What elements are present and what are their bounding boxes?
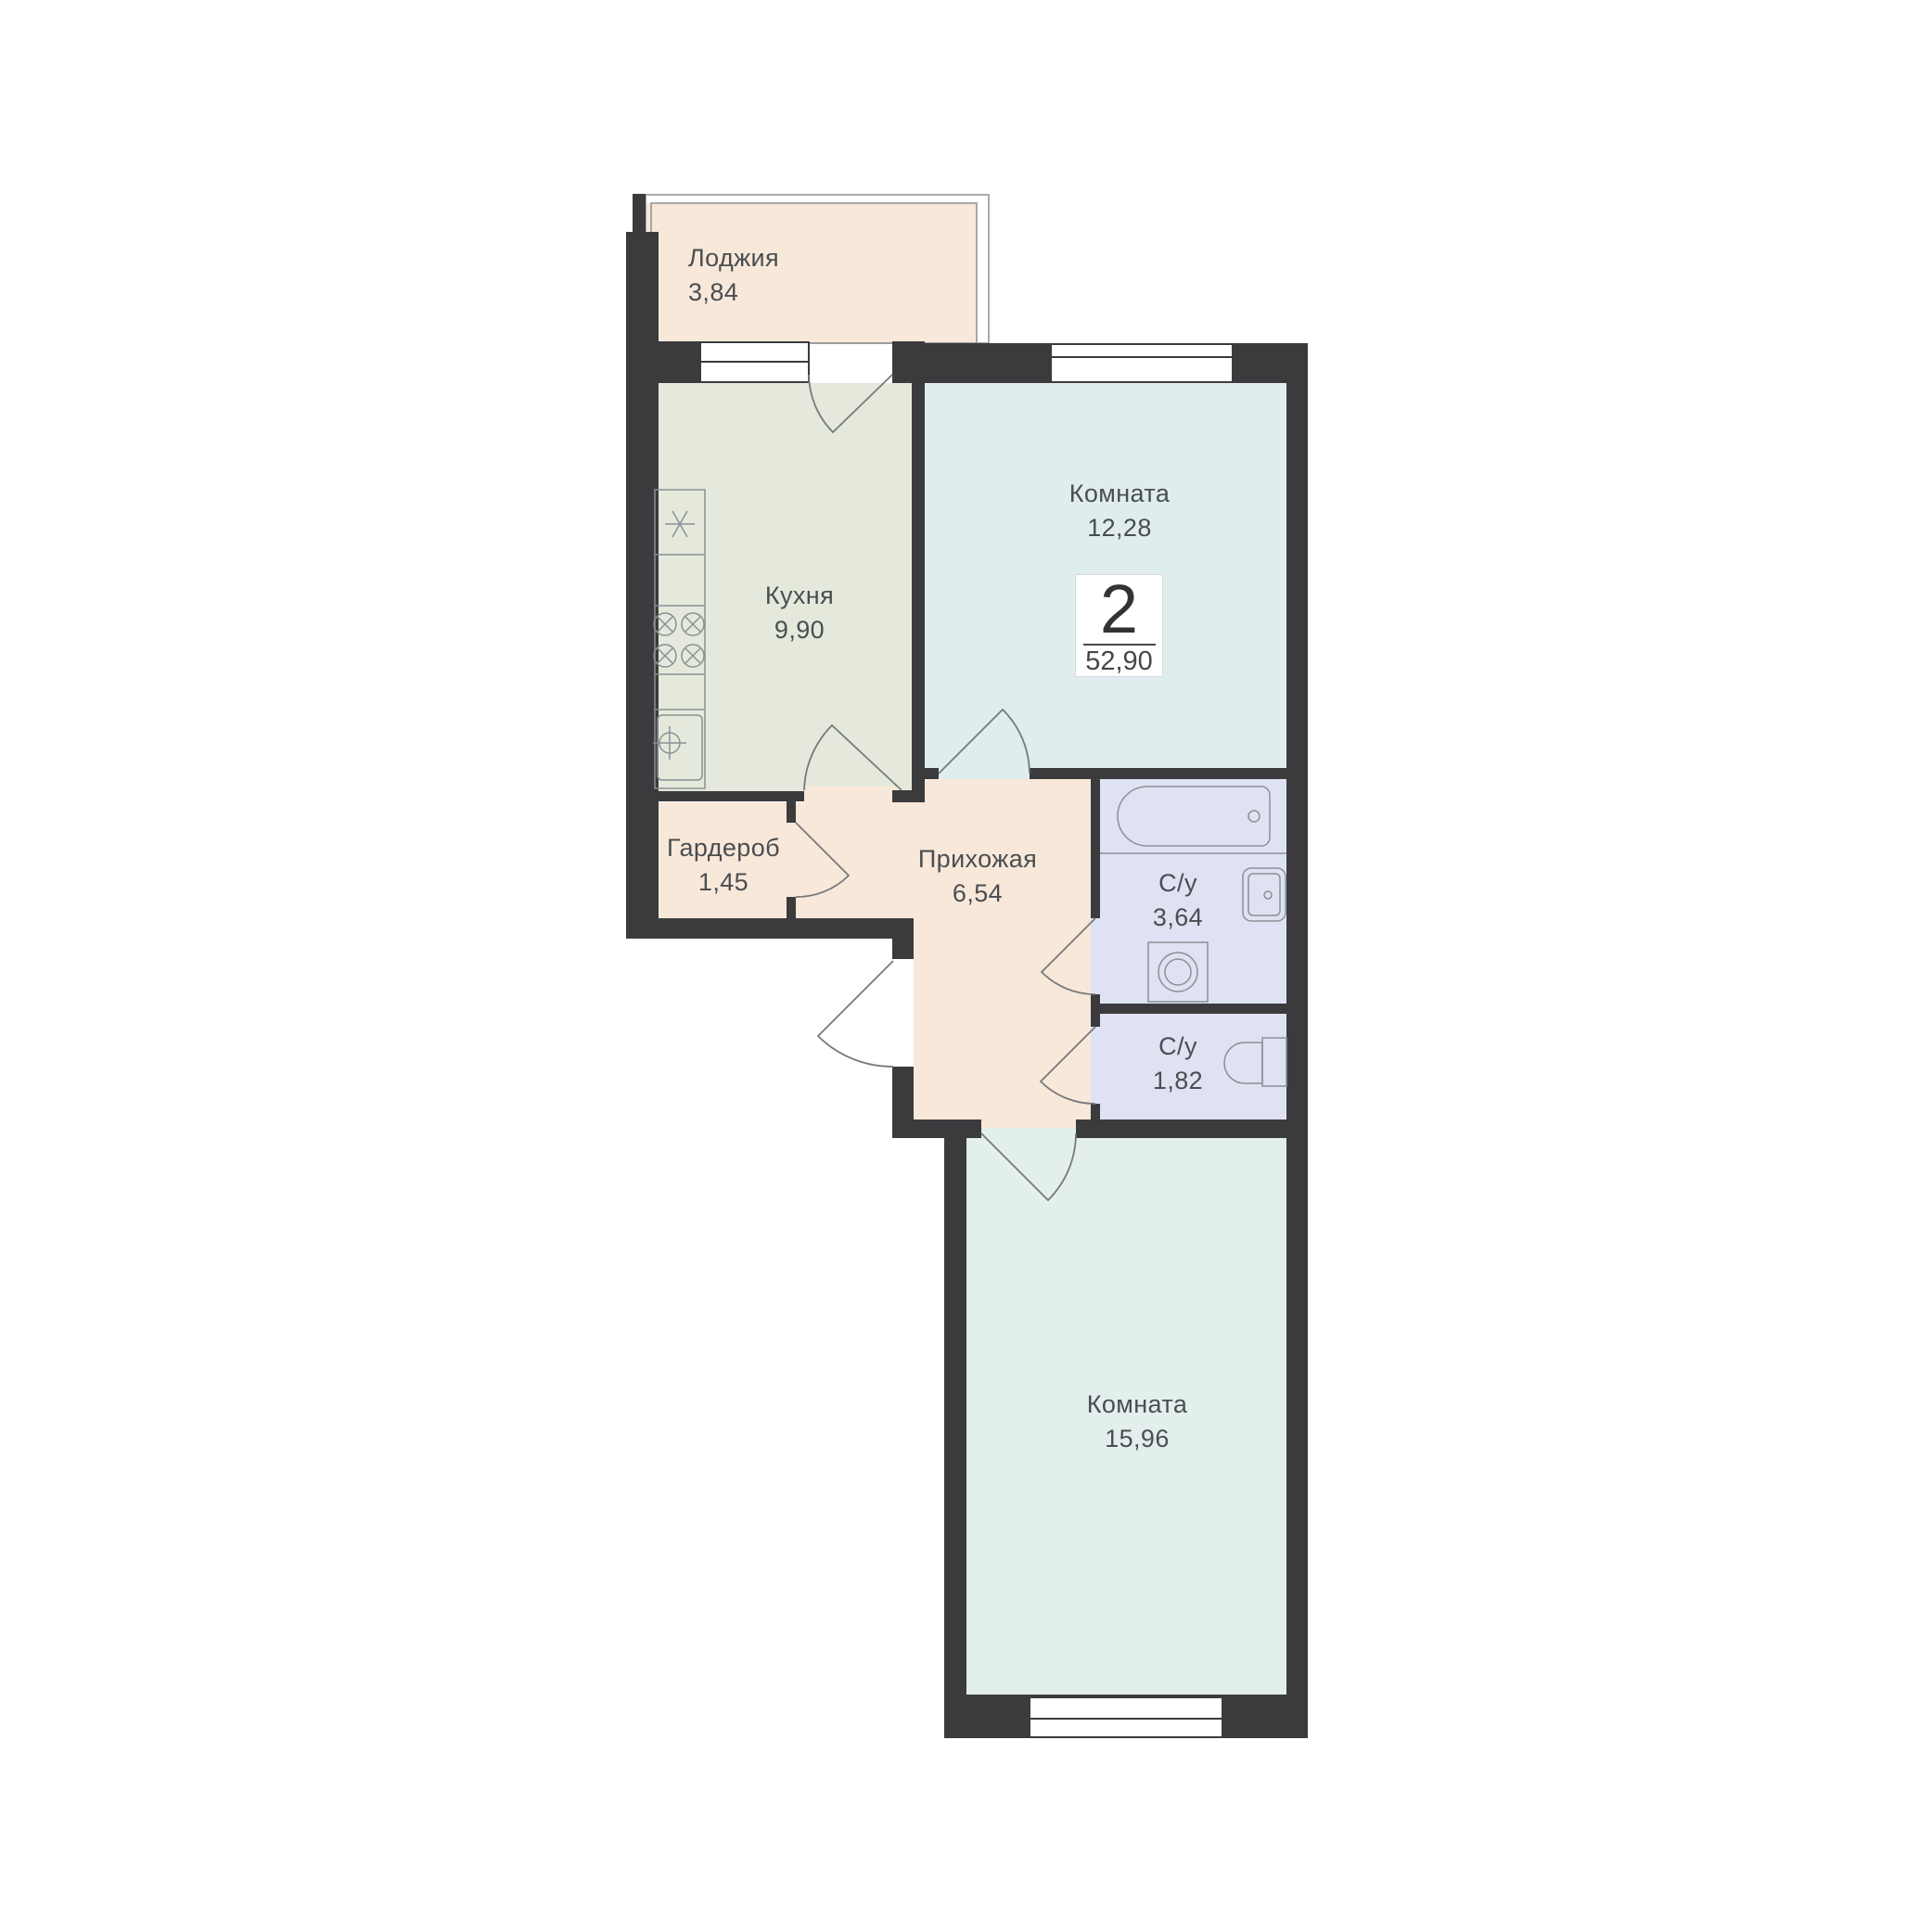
room-label-room-12: Комната 12,28 <box>1069 477 1171 545</box>
doorway-fill-room-12 <box>939 768 1030 779</box>
room-name: Комната <box>1087 1388 1188 1422</box>
room-area: 1,45 <box>667 865 780 900</box>
wall-segment <box>944 1138 966 1738</box>
badge-divider <box>1083 644 1156 646</box>
room-label-bathroom-2: С/у 1,82 <box>1153 1030 1203 1098</box>
apartment-badge: 2 52,90 <box>1075 574 1163 677</box>
doorway-fill-wardrobe <box>787 823 796 897</box>
wall-segment <box>633 194 646 232</box>
wall-segment <box>787 897 796 918</box>
wall-segment <box>912 383 925 802</box>
wall-segment <box>1286 343 1308 1738</box>
room-label-loggia: Лоджия 3,84 <box>688 241 779 310</box>
wall-segment <box>1076 1120 1308 1138</box>
wall-segment <box>925 343 1051 383</box>
wall-segment <box>892 1067 914 1120</box>
room-area: 12,28 <box>1069 511 1171 545</box>
wall-segment <box>787 793 796 823</box>
wall-segment <box>1030 768 1308 779</box>
doorway-fill-bathroom-2 <box>1091 1027 1100 1104</box>
wall-segment <box>892 1120 981 1138</box>
wall-segment <box>626 341 700 383</box>
wall-segment <box>1091 779 1100 918</box>
wall-segment <box>649 791 804 801</box>
doorway-fill-bathroom-1 <box>1091 918 1100 994</box>
wall-segment <box>626 232 659 939</box>
room-area: 3,64 <box>1153 901 1203 935</box>
room-name: С/у <box>1153 866 1203 901</box>
room-area: 1,82 <box>1153 1064 1203 1098</box>
room-label-bathroom-1: С/у 3,64 <box>1153 866 1203 935</box>
window-room-15 <box>1030 1697 1222 1737</box>
wall-segment <box>892 790 925 802</box>
wall-segment <box>626 918 892 939</box>
window-kitchen-loggia <box>700 342 809 382</box>
wall-segment <box>892 918 914 959</box>
door-arc-entrance <box>818 961 893 1067</box>
room-name: Кухня <box>765 579 834 613</box>
room-name: С/у <box>1153 1030 1203 1064</box>
doorway-fill-room-15-b <box>981 1128 1076 1138</box>
room-label-kitchen: Кухня 9,90 <box>765 579 834 647</box>
room-fill-hallway <box>796 768 1091 1120</box>
wall-segment <box>892 341 925 383</box>
doorway-fill-room-15-a <box>981 1120 1076 1128</box>
badge-total-area: 52,90 <box>1085 647 1153 675</box>
room-area: 15,96 <box>1087 1422 1188 1456</box>
wall-segment <box>912 768 939 779</box>
badge-rooms-count: 2 <box>1100 576 1138 643</box>
room-name: Лоджия <box>688 241 779 275</box>
room-name: Комната <box>1069 477 1171 511</box>
room-name: Гардероб <box>667 831 780 865</box>
floor-plan-drawing <box>0 0 1932 1932</box>
room-label-hallway: Прихожая 6,54 <box>918 842 1037 911</box>
room-label-wardrobe: Гардероб 1,45 <box>667 831 780 900</box>
room-label-room-15: Комната 15,96 <box>1087 1388 1188 1456</box>
room-name: Прихожая <box>918 842 1037 876</box>
floor-plan-page: Лоджия 3,84 Кухня 9,90 Комната 12,28 Гар… <box>0 0 1932 1932</box>
room-area: 6,54 <box>918 876 1037 911</box>
room-area: 3,84 <box>688 275 779 310</box>
doorway-fill-kitchen <box>804 787 902 802</box>
wall-segment <box>1091 1104 1100 1120</box>
wall-segment <box>1091 1004 1308 1014</box>
window-room-12 <box>1051 344 1233 382</box>
room-area: 9,90 <box>765 613 834 647</box>
